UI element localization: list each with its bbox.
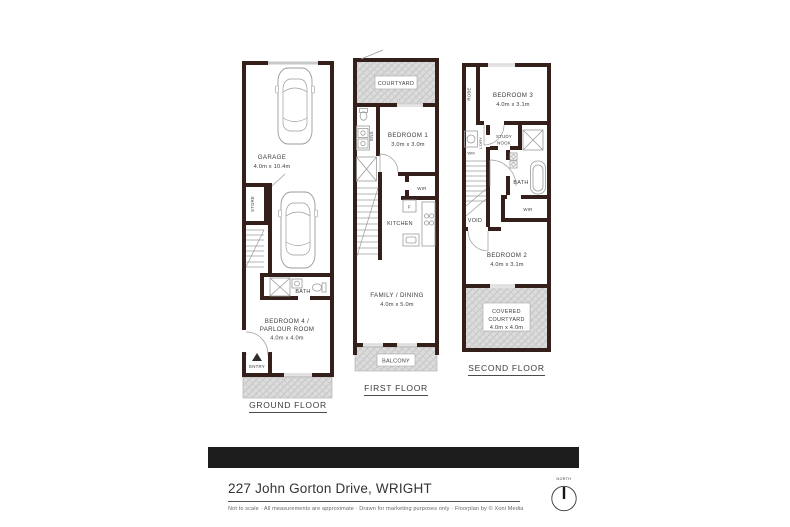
bedroom1-label: BEDROOM 1 <box>388 132 428 139</box>
bedroom2-dims: 4.0m x 3.1m <box>490 262 524 268</box>
front-porch-hatch <box>243 377 332 398</box>
ensuite-fixtures <box>357 109 377 182</box>
entry-label: ENTRY <box>249 364 265 369</box>
bedroom1-door <box>380 154 398 172</box>
first-stairs <box>357 188 378 256</box>
car-icon <box>276 68 315 144</box>
footer-banner <box>208 447 579 468</box>
disclaimer-text: Not to scale · All measurements are appr… <box>228 506 524 512</box>
garage-dims: 4.0m x 10.4m <box>254 164 291 170</box>
bedroom1-dims: 3.0m x 3.0m <box>391 142 425 148</box>
kitchen-label: KITCHEN <box>387 221 413 227</box>
second-floor-title: SECOND FLOOR <box>462 363 551 373</box>
first-floor-plan: COURTYARD ENS BEDROOM 1 3.0m x 3.0m WIR … <box>353 48 439 378</box>
bedroom3-label: BEDROOM 3 <box>493 92 533 99</box>
fridge-label: F <box>408 205 411 210</box>
bedroom4-label: BEDROOM 4 / <box>265 318 309 325</box>
garage-label: GARAGE <box>258 154 287 161</box>
floorplan-page: GARAGE 4.0m x 10.4m STORE BATH BEDROOM 4… <box>0 0 790 527</box>
family-dims: 4.0m x 5.0m <box>380 302 414 308</box>
bath2-label: BATH <box>513 180 528 186</box>
bedroom4-dims: 4.0m x 4.0m <box>270 336 304 342</box>
washing-machine-label: WM <box>467 151 474 156</box>
balcony-label: BALCONY <box>382 359 410 365</box>
first-floor-title: FIRST FLOOR <box>353 383 439 393</box>
covered-courtyard-label2: COURTYARD <box>488 317 524 323</box>
wir-label: WIR <box>417 186 426 191</box>
car-icon <box>279 192 318 268</box>
study-nook-label2: NOOK <box>497 141 511 146</box>
courtyard-label: COURTYARD <box>378 81 414 87</box>
ground-floor-plan: GARAGE 4.0m x 10.4m STORE BATH BEDROOM 4… <box>242 58 334 400</box>
compass-icon <box>549 484 579 512</box>
bedroom4-label2: PARLOUR ROOM <box>260 326 315 333</box>
second-stairs <box>466 161 486 216</box>
laundry-label: L'DRY <box>478 137 483 149</box>
study-nook-label: STUDY <box>496 134 512 139</box>
store-label: STORE <box>250 196 255 212</box>
covered-courtyard-dims: 4.0m x 4.0m <box>490 325 524 331</box>
robe-label: ROBE <box>467 87 472 100</box>
north-compass: NORTH <box>549 477 579 517</box>
front-window <box>284 374 312 377</box>
wir2-label: WIR <box>523 207 532 212</box>
garage-door <box>268 62 318 65</box>
property-address: 227 John Gorton Drive, WRIGHT <box>228 481 432 496</box>
void-label: VOID <box>468 218 482 224</box>
ground-floor-title: GROUND FLOOR <box>242 400 334 410</box>
bedroom3-dims: 4.0m x 3.1m <box>496 102 530 108</box>
bedroom2-label: BEDROOM 2 <box>487 252 527 259</box>
address-underline <box>228 501 520 502</box>
covered-courtyard-label: COVERED <box>492 309 521 315</box>
family-label: FAMILY / DINING <box>370 292 424 299</box>
north-label: NORTH <box>549 477 579 484</box>
bath-label: BATH <box>295 289 310 295</box>
ground-stairs <box>246 230 264 267</box>
second-floor-plan: ROBE BEDROOM 3 4.0m x 3.1m WM L'DRY STUD… <box>462 61 551 355</box>
ensuite-label: ENS <box>369 131 374 141</box>
courtyard-opening-line <box>361 50 383 59</box>
